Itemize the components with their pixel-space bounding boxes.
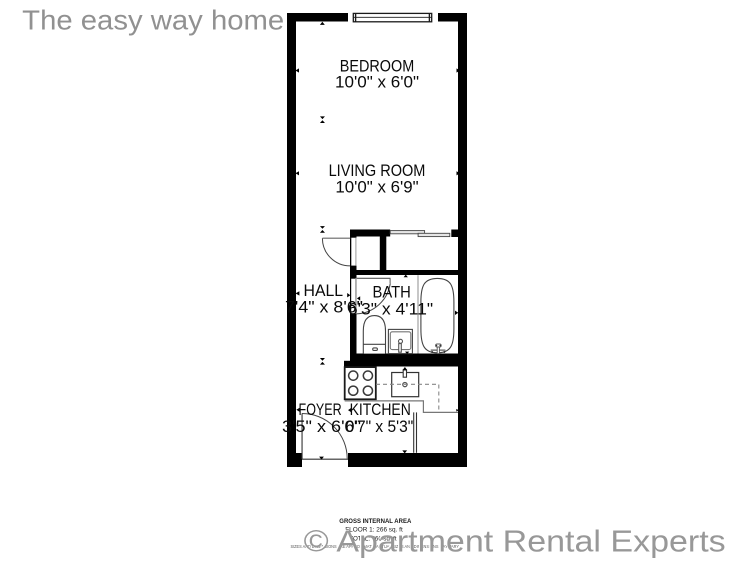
svg-text:KITCHEN: KITCHEN xyxy=(350,400,411,419)
svg-text:10'0" x 6'9": 10'0" x 6'9" xyxy=(335,178,418,197)
svg-text:6'7" x 5'3": 6'7" x 5'3" xyxy=(345,417,413,436)
svg-text:10'0" x 6'0": 10'0" x 6'0" xyxy=(335,73,419,92)
svg-text:6'3" x 4'11": 6'3" x 4'11" xyxy=(348,300,433,319)
svg-text:© Apartment Rental Experts: © Apartment Rental Experts xyxy=(304,524,726,559)
svg-text:The easy way home: The easy way home xyxy=(22,5,284,36)
